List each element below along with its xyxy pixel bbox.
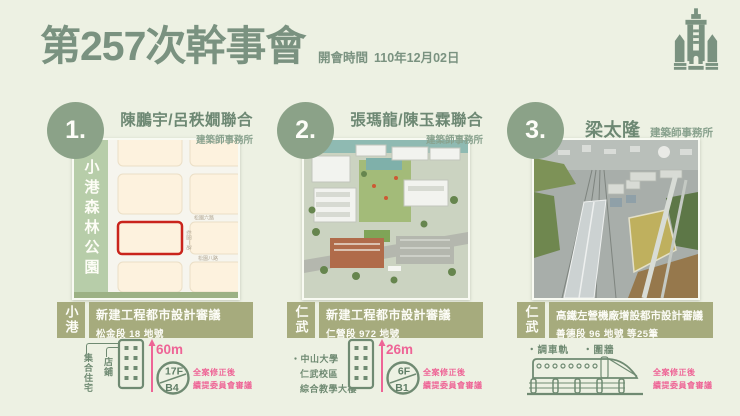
- firm-name: 張瑪龍/陳玉霖聯合: [350, 108, 483, 130]
- case-banner: 仁武 新建工程都市設計審議 仁營段 972 地號: [287, 302, 483, 338]
- architect-firm: 陳鵬宇/呂秩嫺聯合 建築師事務所: [120, 108, 253, 146]
- site-highlight-outline: [118, 222, 182, 254]
- street-label: 松園六路: [194, 215, 214, 222]
- park-label: 小港森林公園: [74, 140, 108, 298]
- building-height: 60m: [156, 342, 183, 357]
- floors-above: 6F: [398, 366, 411, 378]
- case-details: ・中山大學 仁武校區 綜合教學大樓 26m: [285, 340, 485, 416]
- status-line-2: 續提委員會審議: [653, 380, 713, 393]
- firm-suffix: 建築師事務所: [120, 132, 253, 146]
- floors-below: B1: [395, 382, 409, 394]
- firm-name: 梁太隆: [585, 120, 641, 140]
- street-label: 松園一路: [185, 230, 192, 250]
- street-label: 松園八路: [198, 255, 218, 262]
- panel-number-badge: 3.: [507, 102, 564, 159]
- floors-badge: 6F B1: [385, 360, 421, 396]
- meeting-date: 110年12月02日: [374, 51, 459, 65]
- case-details: 集合住宅 店鋪 60m 17F B4: [55, 340, 255, 416]
- case-info: 新建工程都市設計審議 仁營段 972 地號: [319, 302, 483, 338]
- case-banner: 仁武 高鐵左營機廠增設都市設計審議 善德段 96 地號 等25筆: [517, 302, 713, 338]
- depot-photo-graphic: [534, 140, 698, 298]
- floors-badge: 17F B4: [155, 360, 191, 396]
- district-tag: 仁武: [517, 302, 545, 338]
- case-details: ・調車軌 ・圍牆: [515, 340, 715, 416]
- campus-render-image: [302, 138, 470, 300]
- meeting-time-label: 開會時間: [318, 51, 368, 65]
- case-title: 新建工程都市設計審議: [326, 306, 476, 323]
- building-icon: [117, 338, 145, 390]
- case-panel-2: 2. 張瑪龍/陳玉霖聯合 建築師事務所: [285, 100, 485, 416]
- case-info: 新建工程都市設計審議 松金段 18 地號: [89, 302, 253, 338]
- status-line-1: 全案修正後: [423, 367, 483, 380]
- case-title: 高鐵左營機廠增設都市設計審議: [556, 308, 706, 323]
- firm-name: 陳鵬宇/呂秩嫺聯合: [120, 108, 253, 130]
- floors-below: B4: [165, 382, 179, 394]
- architect-firm: 梁太隆 建築師事務所: [585, 116, 713, 142]
- floors-above: 17F: [165, 366, 184, 378]
- panel-number-badge: 2.: [277, 102, 334, 159]
- slide: 第257次幹事會 開會時間110年12月02日 1. 陳鵬宇/呂秩嫺聯合 建築師…: [0, 0, 740, 416]
- train-fence-icon: [525, 354, 645, 396]
- firm-suffix: 建築師事務所: [350, 132, 483, 146]
- building-icon: [347, 338, 375, 390]
- status-line-1: 全案修正後: [653, 367, 713, 380]
- status-line-1: 全案修正後: [193, 367, 253, 380]
- depot-aerial-image: [532, 138, 700, 300]
- district-tag: 仁武: [287, 302, 315, 338]
- building-height: 26m: [386, 342, 413, 357]
- architect-firm: 張瑪龍/陳玉霖聯合 建築師事務所: [350, 108, 483, 146]
- case-banner: 小港 新建工程都市設計審議 松金段 18 地號: [57, 302, 253, 338]
- page-title: 第257次幹事會: [40, 12, 305, 72]
- panel-number-badge: 1.: [47, 102, 104, 159]
- use-label-shop: 店鋪: [102, 357, 115, 377]
- meeting-time: 開會時間110年12月02日: [318, 47, 466, 66]
- tower-logo-icon: [672, 8, 720, 72]
- status-line-2: 續提委員會審議: [193, 380, 253, 393]
- case-title: 新建工程都市設計審議: [96, 306, 246, 323]
- case-panel-3: 3. 梁太隆 建築師事務所: [515, 100, 715, 416]
- campus-render-graphic: [304, 140, 468, 298]
- case-info: 高鐵左營機廠增設都市設計審議 善德段 96 地號 等25筆: [549, 302, 713, 338]
- status-line-2: 續提委員會審議: [423, 380, 483, 393]
- review-status: 全案修正後 續提委員會審議: [423, 367, 483, 393]
- review-status: 全案修正後 續提委員會審議: [193, 367, 253, 393]
- firm-suffix: 建築師事務所: [650, 127, 713, 139]
- case-panel-1: 1. 陳鵬宇/呂秩嫺聯合 建築師事務所 松園六路 松園一: [55, 100, 255, 416]
- use-label-housing: 集合住宅: [82, 353, 95, 393]
- review-status: 全案修正後 續提委員會審議: [653, 367, 713, 393]
- site-map-image: 松園六路 松園一路 松園八路 小港森林公園: [72, 138, 240, 300]
- district-tag: 小港: [57, 302, 85, 338]
- case-lot: 善德段 96 地號 等25筆: [556, 326, 706, 340]
